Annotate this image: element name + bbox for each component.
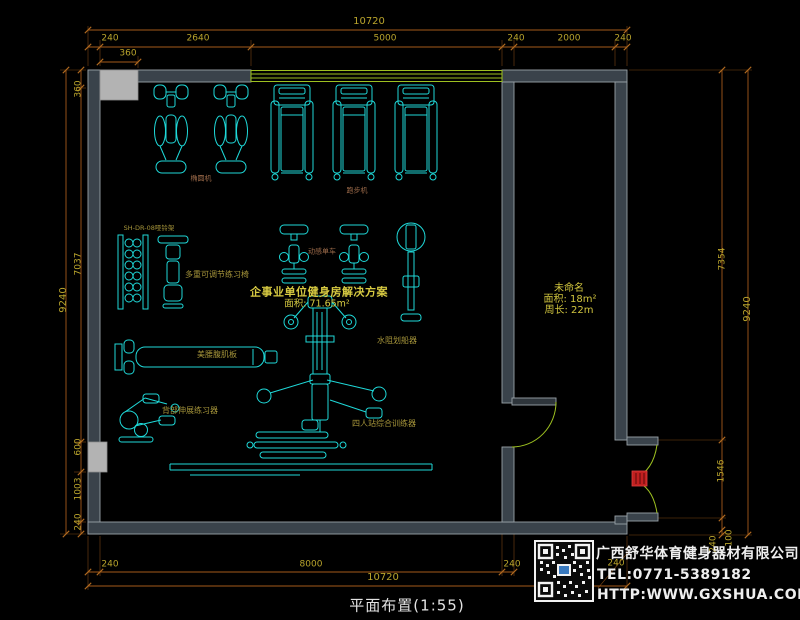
qr-code xyxy=(535,541,593,601)
label-back-stretch: 背部伸展练习器 xyxy=(162,407,218,415)
window xyxy=(251,71,502,82)
floorplan-drawing xyxy=(0,0,800,620)
dim-left-seg3: 600 xyxy=(75,438,84,455)
label-dumbbell-rack: SH-DR-08哑铃架 xyxy=(124,225,175,232)
label-elliptical: 椭圆机 xyxy=(191,176,212,183)
label-adjustable-bench: 多重可调节练习椅 xyxy=(185,271,249,279)
equipment-treadmills xyxy=(271,85,437,180)
dim-top-seg3: 5000 xyxy=(374,35,397,44)
equipment-ellipticals xyxy=(154,85,248,173)
label-multi-station: 四人站综合训练器 xyxy=(352,420,416,428)
door-swings xyxy=(512,402,657,513)
equipment-adjustable-bench xyxy=(158,236,188,308)
dim-top-total: 10720 xyxy=(353,17,385,27)
dim-right-seg4: 100 xyxy=(726,529,735,546)
equipment-rowing-machine xyxy=(397,223,425,321)
main-room-area: 面积: 71.65m² xyxy=(284,299,349,309)
dim-right-seg2: 1546 xyxy=(718,460,727,483)
dim-bottom-seg1: 240 xyxy=(101,561,118,570)
dim-right-seg1: 7354 xyxy=(719,248,728,271)
dim-bottom-seg2: 8000 xyxy=(300,561,323,570)
company-web: HTTP:WWW.GXSHUA.COM xyxy=(597,588,800,602)
dim-top-seg4: 240 xyxy=(507,35,524,44)
dim-right-total: 9240 xyxy=(743,296,753,321)
equipment-multi-station xyxy=(247,296,386,458)
dim-left-seg4: 1003 xyxy=(75,478,84,501)
dim-bottom-seg3: 240 xyxy=(503,561,520,570)
side-room-name: 未命名 xyxy=(554,284,584,294)
company-name: 广西舒华体育健身器材有限公司 xyxy=(596,547,799,561)
dim-left-seg2: 7037 xyxy=(75,253,84,276)
equipment-back-stretch xyxy=(119,394,179,442)
drawing-title: 平面布置(1:55) xyxy=(349,599,464,614)
dim-left-seg1: 360 xyxy=(75,80,84,97)
dim-top-seg6: 240 xyxy=(614,35,631,44)
door-marker xyxy=(632,471,647,486)
cad-floorplan-canvas: 10720 240 2640 5000 240 2000 240 360 924… xyxy=(0,0,800,620)
company-tel: TEL:0771-5389182 xyxy=(597,568,752,582)
dim-top-seg2: 2640 xyxy=(187,35,210,44)
side-room-area: 面积: 18m² xyxy=(543,295,596,305)
label-treadmill: 跑步机 xyxy=(347,188,368,195)
equipment-dumbbell-rack xyxy=(118,235,148,309)
floor-mat-lines xyxy=(170,464,432,475)
label-rowing-machine: 水阻划船器 xyxy=(377,337,417,345)
dim-bottom-total: 10720 xyxy=(367,573,399,583)
dim-top-seg5: 2000 xyxy=(558,35,581,44)
dim-left-total: 9240 xyxy=(59,287,69,312)
label-spin-bike: 动感单车 xyxy=(308,249,336,256)
dim-top-seg1: 240 xyxy=(101,35,118,44)
main-room-title: 企事业单位健身房解决方案 xyxy=(250,287,388,298)
equipment-ab-board xyxy=(115,340,277,374)
dim-top-sub: 360 xyxy=(119,50,136,59)
label-ab-board: 美腰腹肌板 xyxy=(197,351,237,359)
dim-left-seg5: 240 xyxy=(75,513,84,530)
side-room-perimeter: 周长: 22m xyxy=(544,306,593,316)
